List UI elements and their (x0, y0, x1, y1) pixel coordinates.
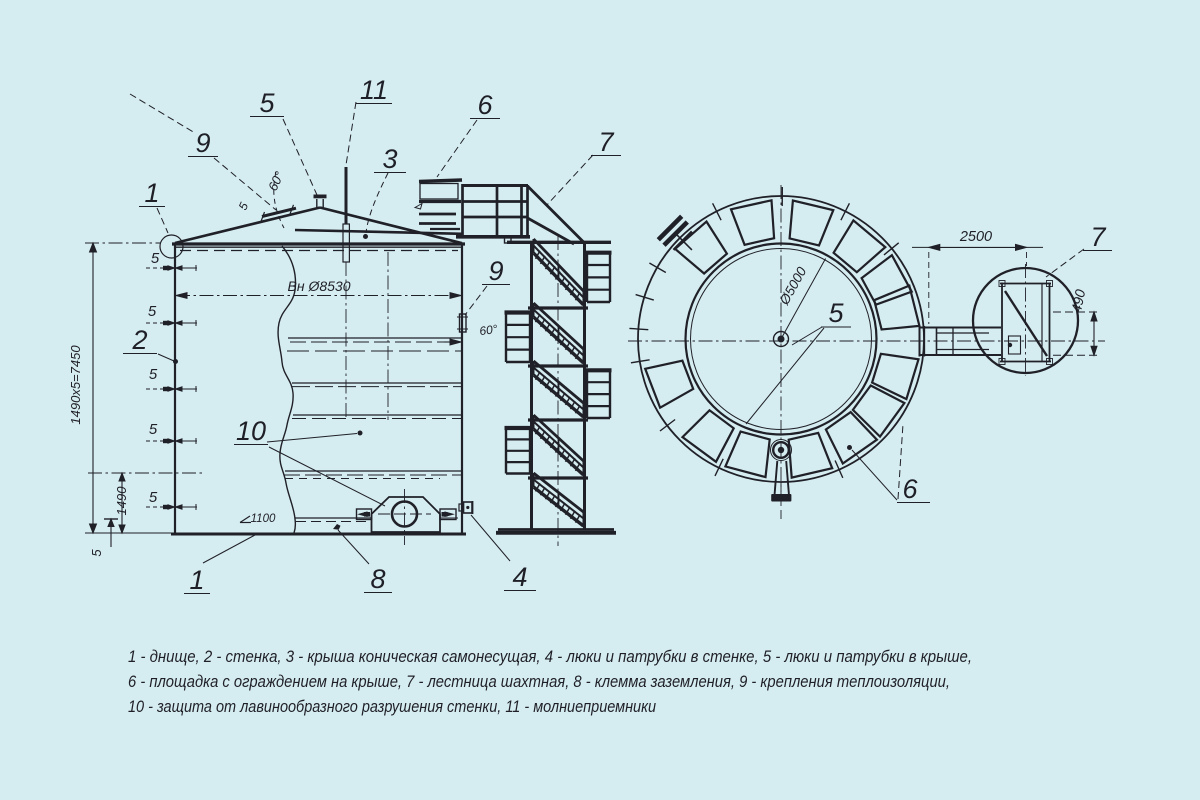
svg-text:5: 5 (151, 250, 160, 267)
svg-text:9: 9 (195, 128, 210, 158)
svg-text:4: 4 (512, 562, 527, 592)
svg-text:10: 10 (236, 416, 266, 446)
svg-text:6 - площадка с ограждением на: 6 - площадка с ограждением на крыше, 7 -… (128, 673, 950, 691)
svg-text:6: 6 (902, 474, 918, 504)
svg-text:5: 5 (148, 303, 157, 320)
svg-text:1490: 1490 (114, 486, 129, 516)
svg-text:6: 6 (477, 90, 493, 120)
svg-text:10 - защита от лавинообразного: 10 - защита от лавинообразного разрушени… (128, 698, 656, 716)
svg-text:7: 7 (598, 127, 614, 157)
svg-text:5: 5 (89, 549, 104, 557)
svg-text:1100: 1100 (251, 513, 276, 525)
svg-text:5: 5 (149, 421, 158, 438)
svg-text:1490х5=7450: 1490х5=7450 (68, 345, 83, 425)
svg-text:1: 1 (189, 565, 204, 595)
svg-text:60°: 60° (478, 322, 498, 338)
svg-text:9: 9 (488, 256, 503, 286)
svg-text:5: 5 (828, 298, 844, 328)
svg-text:7: 7 (1090, 222, 1106, 252)
svg-text:2500: 2500 (959, 229, 992, 245)
svg-text:2: 2 (131, 325, 147, 355)
svg-text:Вн Ø8530: Вн Ø8530 (288, 278, 351, 294)
svg-text:11: 11 (360, 75, 388, 105)
svg-text:3: 3 (382, 144, 397, 174)
svg-text:5: 5 (149, 489, 158, 506)
svg-text:5: 5 (259, 88, 275, 118)
svg-text:1 - днище, 2 - стенка, 3 - кры: 1 - днище, 2 - стенка, 3 - крыша коничес… (128, 648, 972, 666)
svg-text:8: 8 (370, 564, 385, 594)
svg-text:1: 1 (144, 178, 159, 208)
svg-text:5: 5 (149, 366, 158, 383)
